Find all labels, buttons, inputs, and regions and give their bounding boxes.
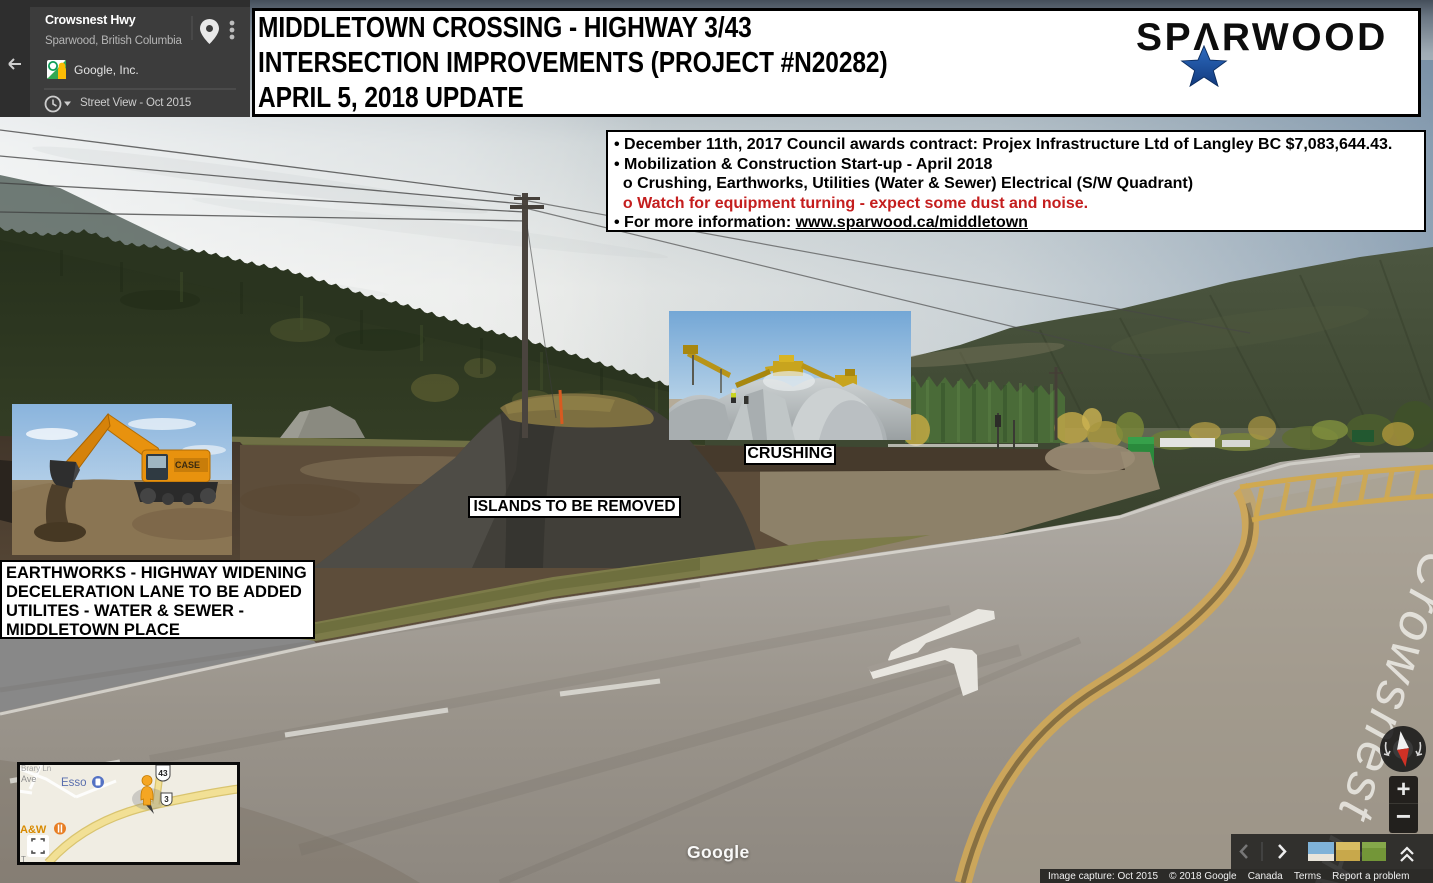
svg-text:CASE: CASE (175, 460, 200, 470)
